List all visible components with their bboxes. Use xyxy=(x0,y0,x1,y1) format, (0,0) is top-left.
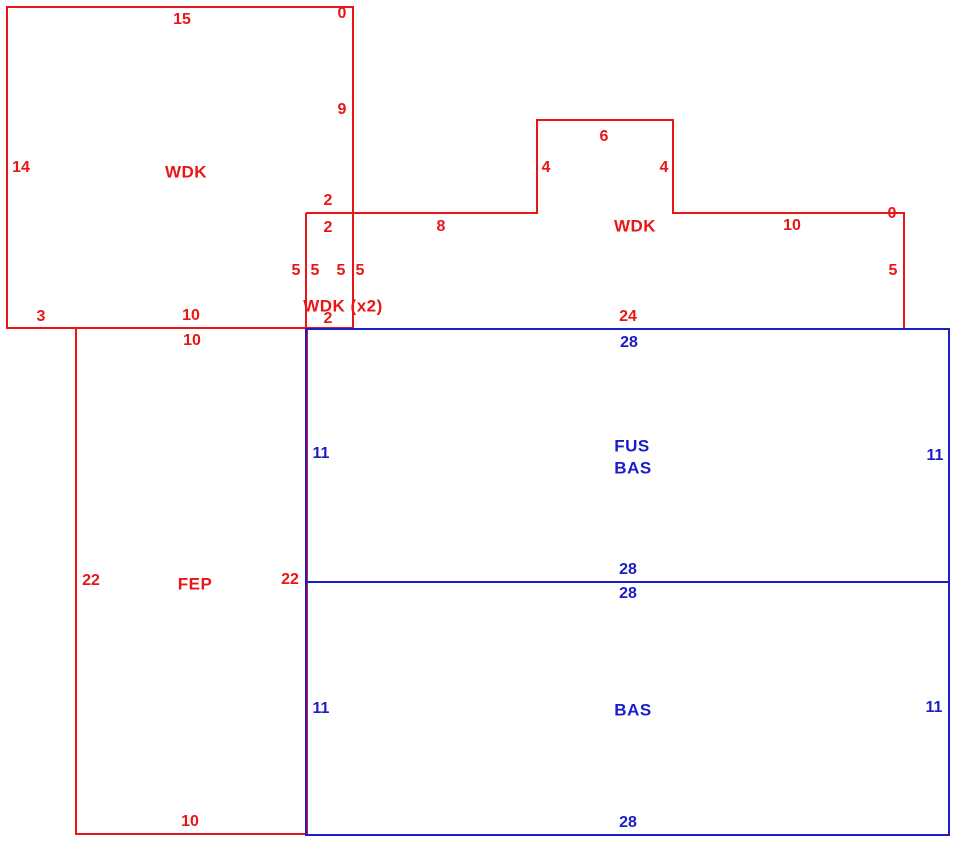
wdk1-dim-left-14: 14 xyxy=(12,160,30,176)
wdkx2-dim-5-b: 5 xyxy=(311,263,320,279)
fep-dim-left-22: 22 xyxy=(82,573,100,589)
fus-dim-bottom-28: 28 xyxy=(619,562,637,578)
sketch-canvas: 150914WDK228644WDK1005245555WDK (x2)2310… xyxy=(0,0,970,867)
wdk2-dim-2-above: 2 xyxy=(324,193,333,209)
bas-dim-left-11: 11 xyxy=(313,701,330,717)
bas-area-label: BAS xyxy=(614,702,651,719)
fus-dim-right-11: 11 xyxy=(927,448,944,464)
wdk2-dim-notch-top-6: 6 xyxy=(600,129,609,145)
wdk1-dim-topright-0: 0 xyxy=(338,6,347,22)
fus-dim-left-11: 11 xyxy=(313,446,330,462)
wdkx2-dim-5-c: 5 xyxy=(337,263,346,279)
wdk2-dim-top-8: 8 xyxy=(437,219,446,235)
fep-dim-bottom-10: 10 xyxy=(181,814,199,830)
fus-area-label-line2: BAS xyxy=(614,460,651,477)
wdk1-dim-right-9: 9 xyxy=(338,102,347,118)
wdkx2-area-label: WDK (x2) xyxy=(303,298,383,315)
wdk1-dim-top-15: 15 xyxy=(173,12,191,28)
wdk1-dim-bottom-10: 10 xyxy=(182,308,200,324)
fep-dim-top-10: 10 xyxy=(183,333,201,349)
wdk2-dim-bottom-24: 24 xyxy=(619,309,637,325)
sketch-lines xyxy=(0,0,970,867)
wdkx2-dim-bottom-2: 2 xyxy=(324,311,333,327)
bas-dim-top-28: 28 xyxy=(619,586,637,602)
fus-area-label-line1: FUS xyxy=(614,438,650,455)
wdk-right-outline xyxy=(306,120,904,328)
fep-area-label: FEP xyxy=(178,576,213,593)
wdk2-area-label: WDK xyxy=(614,218,656,235)
wdk2-dim-2-below: 2 xyxy=(324,220,333,236)
wdkx2-dim-5-a: 5 xyxy=(292,263,301,279)
bas-dim-bottom-28: 28 xyxy=(619,815,637,831)
fus-dim-top-28: 28 xyxy=(620,335,638,351)
wdk2-dim-notch-right-4: 4 xyxy=(660,160,669,176)
wdk2-dim-top-10: 10 xyxy=(783,218,801,234)
wdk1-dim-bottom-3: 3 xyxy=(37,309,46,325)
bas-dim-right-11: 11 xyxy=(926,700,943,716)
wdk2-dim-right-5: 5 xyxy=(889,263,898,279)
wdk2-dim-topright-0: 0 xyxy=(888,206,897,222)
wdkx2-dim-5-d: 5 xyxy=(356,263,365,279)
fep-dim-right-22: 22 xyxy=(281,572,299,588)
wdk2-dim-notch-left-4: 4 xyxy=(542,160,551,176)
wdk1-area-label: WDK xyxy=(165,164,207,181)
